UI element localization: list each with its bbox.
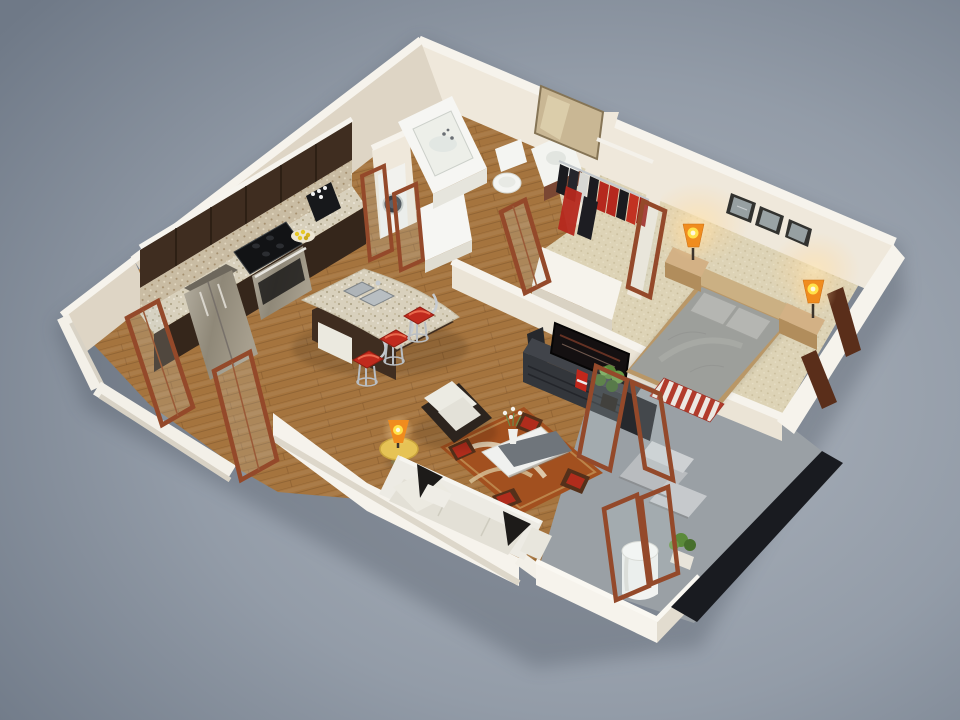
- tub-faucet-icon: [442, 132, 446, 136]
- fruit: [301, 230, 305, 234]
- island-faucet: [376, 281, 381, 286]
- cup: [319, 195, 323, 199]
- cup: [317, 189, 321, 193]
- cup: [311, 192, 315, 196]
- lamp-hotspot: [691, 231, 696, 236]
- fruit: [295, 232, 299, 236]
- apartment-3d-svg: [0, 0, 960, 720]
- burner: [266, 236, 274, 241]
- burner: [276, 244, 284, 249]
- burner: [262, 252, 270, 257]
- flower: [518, 411, 522, 415]
- tub-faucet-icon: [447, 129, 450, 132]
- flower: [509, 415, 513, 419]
- fruit: [304, 236, 308, 240]
- floorplan-render: [0, 0, 960, 720]
- lamp-hotspot: [396, 428, 400, 432]
- bedside-lamp-left: [669, 212, 717, 260]
- plant-leaves: [684, 539, 696, 551]
- tub-faucet-icon: [450, 136, 454, 140]
- flower: [511, 407, 515, 411]
- cup: [323, 186, 327, 190]
- flower: [503, 411, 507, 415]
- bathroom-door-leaf: [394, 184, 423, 270]
- burner: [252, 244, 260, 249]
- fruit: [298, 236, 302, 240]
- lamp-hotspot: [811, 287, 816, 292]
- toilet-seat: [499, 177, 516, 188]
